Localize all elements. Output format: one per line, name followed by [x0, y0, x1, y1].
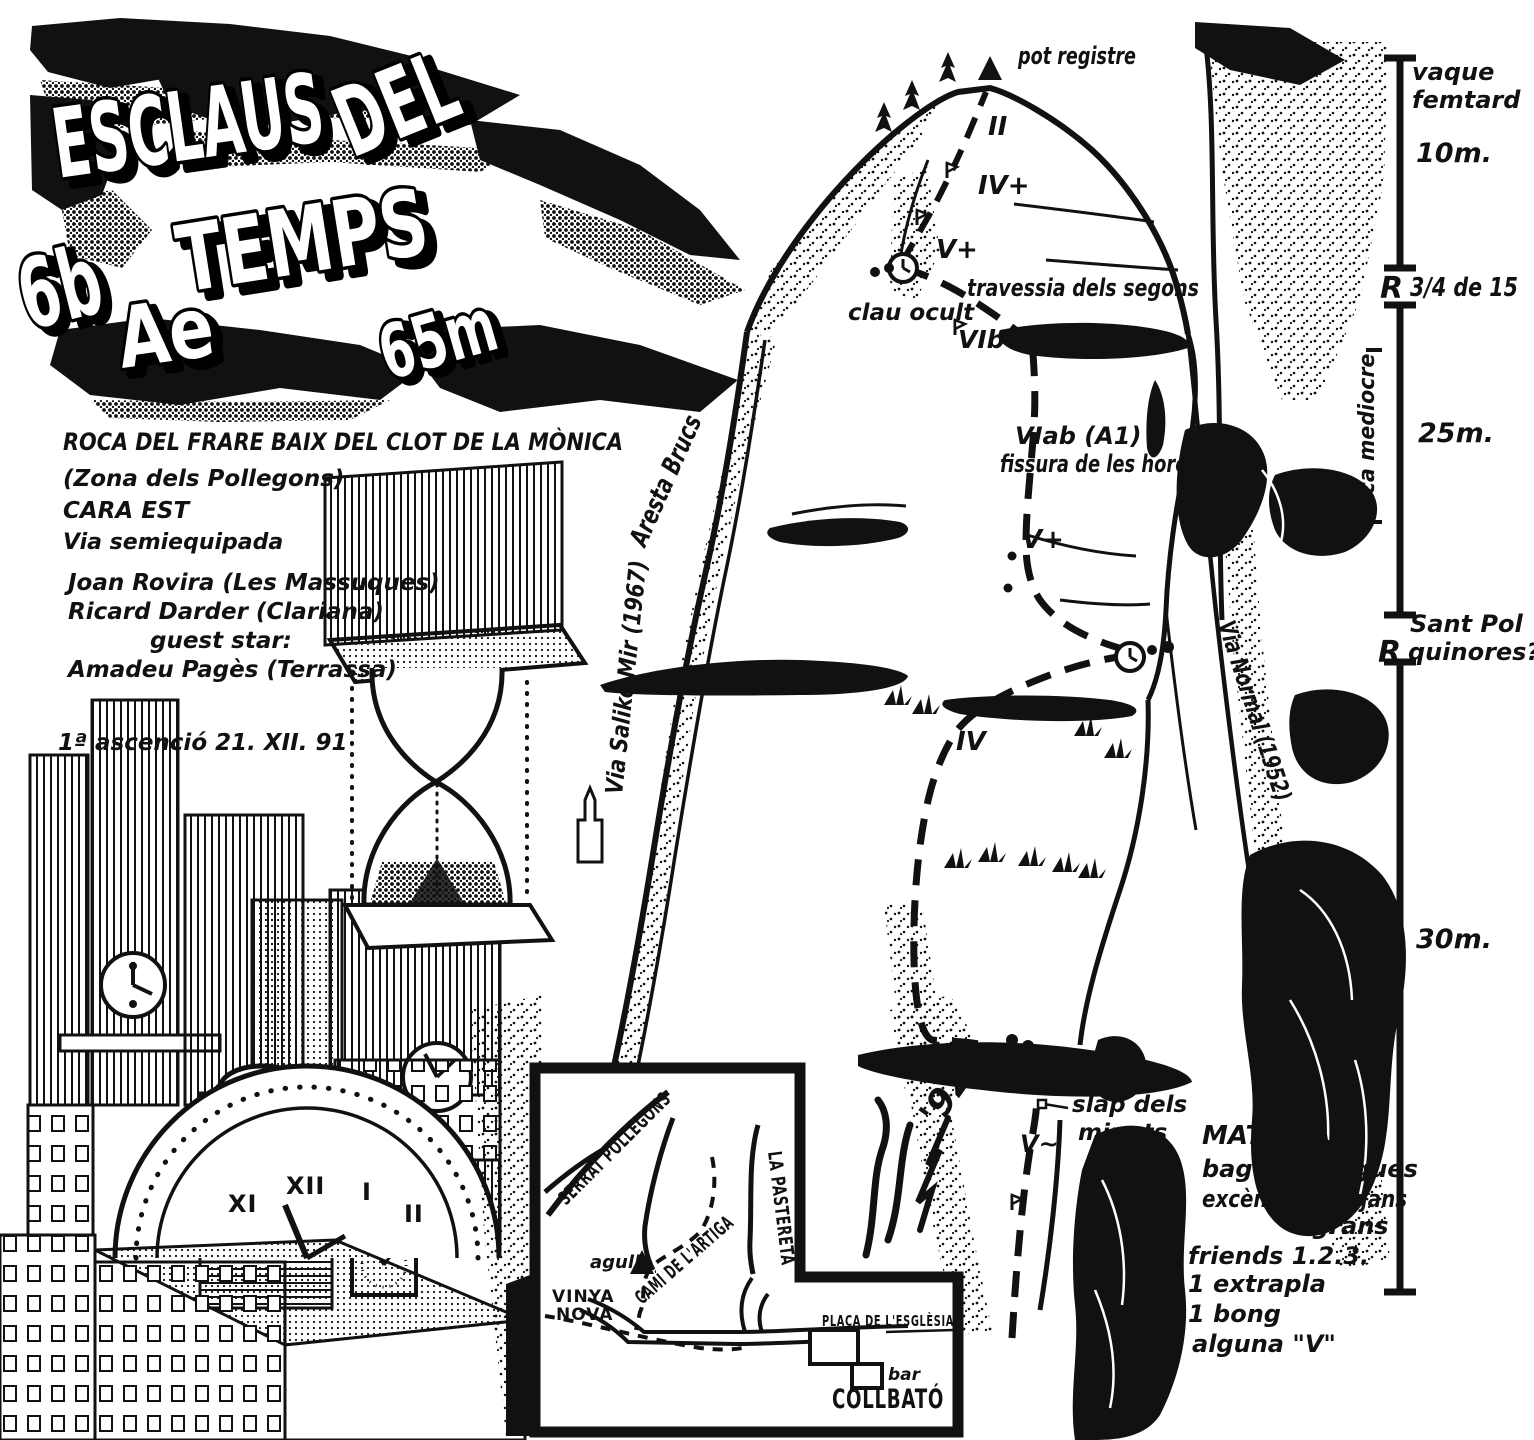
label-pot-registre: pot registre — [1017, 42, 1136, 70]
belay3-name-line1: Sant Pol — [1410, 610, 1523, 638]
material-item: bagues llargues — [1202, 1155, 1418, 1183]
hourglass-illustration — [325, 462, 602, 948]
summit-tree-icon — [903, 80, 920, 110]
pitch3-length: 30m. — [1416, 924, 1492, 955]
label-pitch-V-slab: V~ — [1020, 1130, 1059, 1158]
clock-numeral-xi: XI — [228, 1190, 257, 1218]
label-pitch-VIb: VIb — [958, 325, 1005, 354]
anchor-square-icon — [1038, 1100, 1046, 1108]
belay3-name-line2: quinores? — [1408, 638, 1534, 666]
label-fissura: fissura de les hores — [1000, 450, 1198, 478]
material-item: grans — [1312, 1212, 1389, 1240]
map-vinya-line1: VINYA — [552, 1287, 615, 1307]
material-header: MATERIAL: — [1202, 1121, 1358, 1151]
label-clau-ocult: clau ocult — [848, 300, 975, 326]
topo-drawing: ESCLAUS ESCLAUS DEL DEL TEMPS TEMPS 6b 6… — [0, 0, 1534, 1440]
belay3-r-label: R — [1378, 635, 1401, 670]
climbing-topo-page: ESCLAUS ESCLAUS DEL DEL TEMPS TEMPS 6b 6… — [0, 0, 1534, 1440]
author-2: Ricard Darder (Clariana) — [68, 599, 384, 625]
label-slap-line1: slap dels — [1072, 1092, 1187, 1118]
map-agulla-label: agulla — [590, 1252, 652, 1273]
belay2-name: 3/4 de 15 — [1410, 273, 1518, 303]
summit-marker-icon — [978, 56, 1002, 80]
author-1: Joan Rovira (Les Massuques) — [64, 570, 440, 596]
crag-zone: (Zona dels Pollegons) — [63, 466, 344, 492]
map-bar-label: bar — [888, 1365, 922, 1385]
clock-numeral-ii: II — [404, 1200, 424, 1228]
label-slap-line2: minuts — [1078, 1120, 1167, 1146]
label-pitch-Ae: Ae — [978, 1051, 1018, 1081]
belay2-r-label: R — [1380, 271, 1403, 306]
crag-name: ROCA DEL FRARE BAIX DEL CLOT DE LA MÒNIC… — [63, 426, 623, 456]
belay-clock-icon — [1116, 643, 1144, 671]
guest-star-label: guest star: — [150, 628, 292, 654]
rock-quality-note: roca mediocre — [1355, 353, 1380, 518]
label-pitch-V-plus-upper: V+ — [936, 235, 978, 265]
pitch1-length: 10m. — [1416, 138, 1492, 169]
label-pitch-VIab: VIab (A1) — [1015, 422, 1141, 450]
belay1-name-line1: vaque — [1412, 58, 1494, 86]
guest-star: Amadeu Pagès (Terrassa) — [66, 657, 397, 683]
material-item: 1 bong — [1188, 1300, 1281, 1328]
summit-tree-icon — [939, 52, 956, 82]
label-travessia: travessia dels segons — [967, 274, 1199, 302]
map-vinya-line2: NOVA — [556, 1305, 613, 1325]
label-pitch-V-plus-mid: V+ — [1022, 525, 1064, 555]
belay1-name-line2: femtard — [1412, 86, 1521, 114]
map-town-collbato: COLLBATÓ — [832, 1383, 944, 1415]
clock-numeral-xii: XII — [286, 1172, 325, 1200]
crag-face: CARA EST — [63, 498, 191, 524]
hourglass-upper-bulb — [372, 668, 502, 782]
skyscraper-silhouette — [578, 788, 602, 862]
pitch2-length: 25m. — [1418, 418, 1494, 449]
label-pitch-IV-plus: IV+ — [978, 171, 1030, 201]
material-item: friends 1.2.3. — [1188, 1242, 1369, 1270]
map-placa-esglesia: PLAÇA DE L'ESGLÈSIA — [822, 1311, 954, 1330]
summit-tree-icon — [875, 102, 892, 132]
label-pitch-II: II — [988, 112, 1008, 142]
first-ascent: 1ª ascenció 21. XII. 91 — [58, 730, 347, 756]
material-item: alguna "V" — [1192, 1330, 1336, 1358]
material-item: excèntrics mitjans — [1202, 1185, 1407, 1213]
material-item: 1 extrapla — [1188, 1270, 1326, 1298]
clock-numeral-i: I — [362, 1178, 372, 1206]
route-equipment: Via semiequipada — [63, 530, 283, 555]
title-aid-grade: Ae — [111, 277, 220, 387]
label-pitch-IV: IV — [956, 727, 988, 757]
